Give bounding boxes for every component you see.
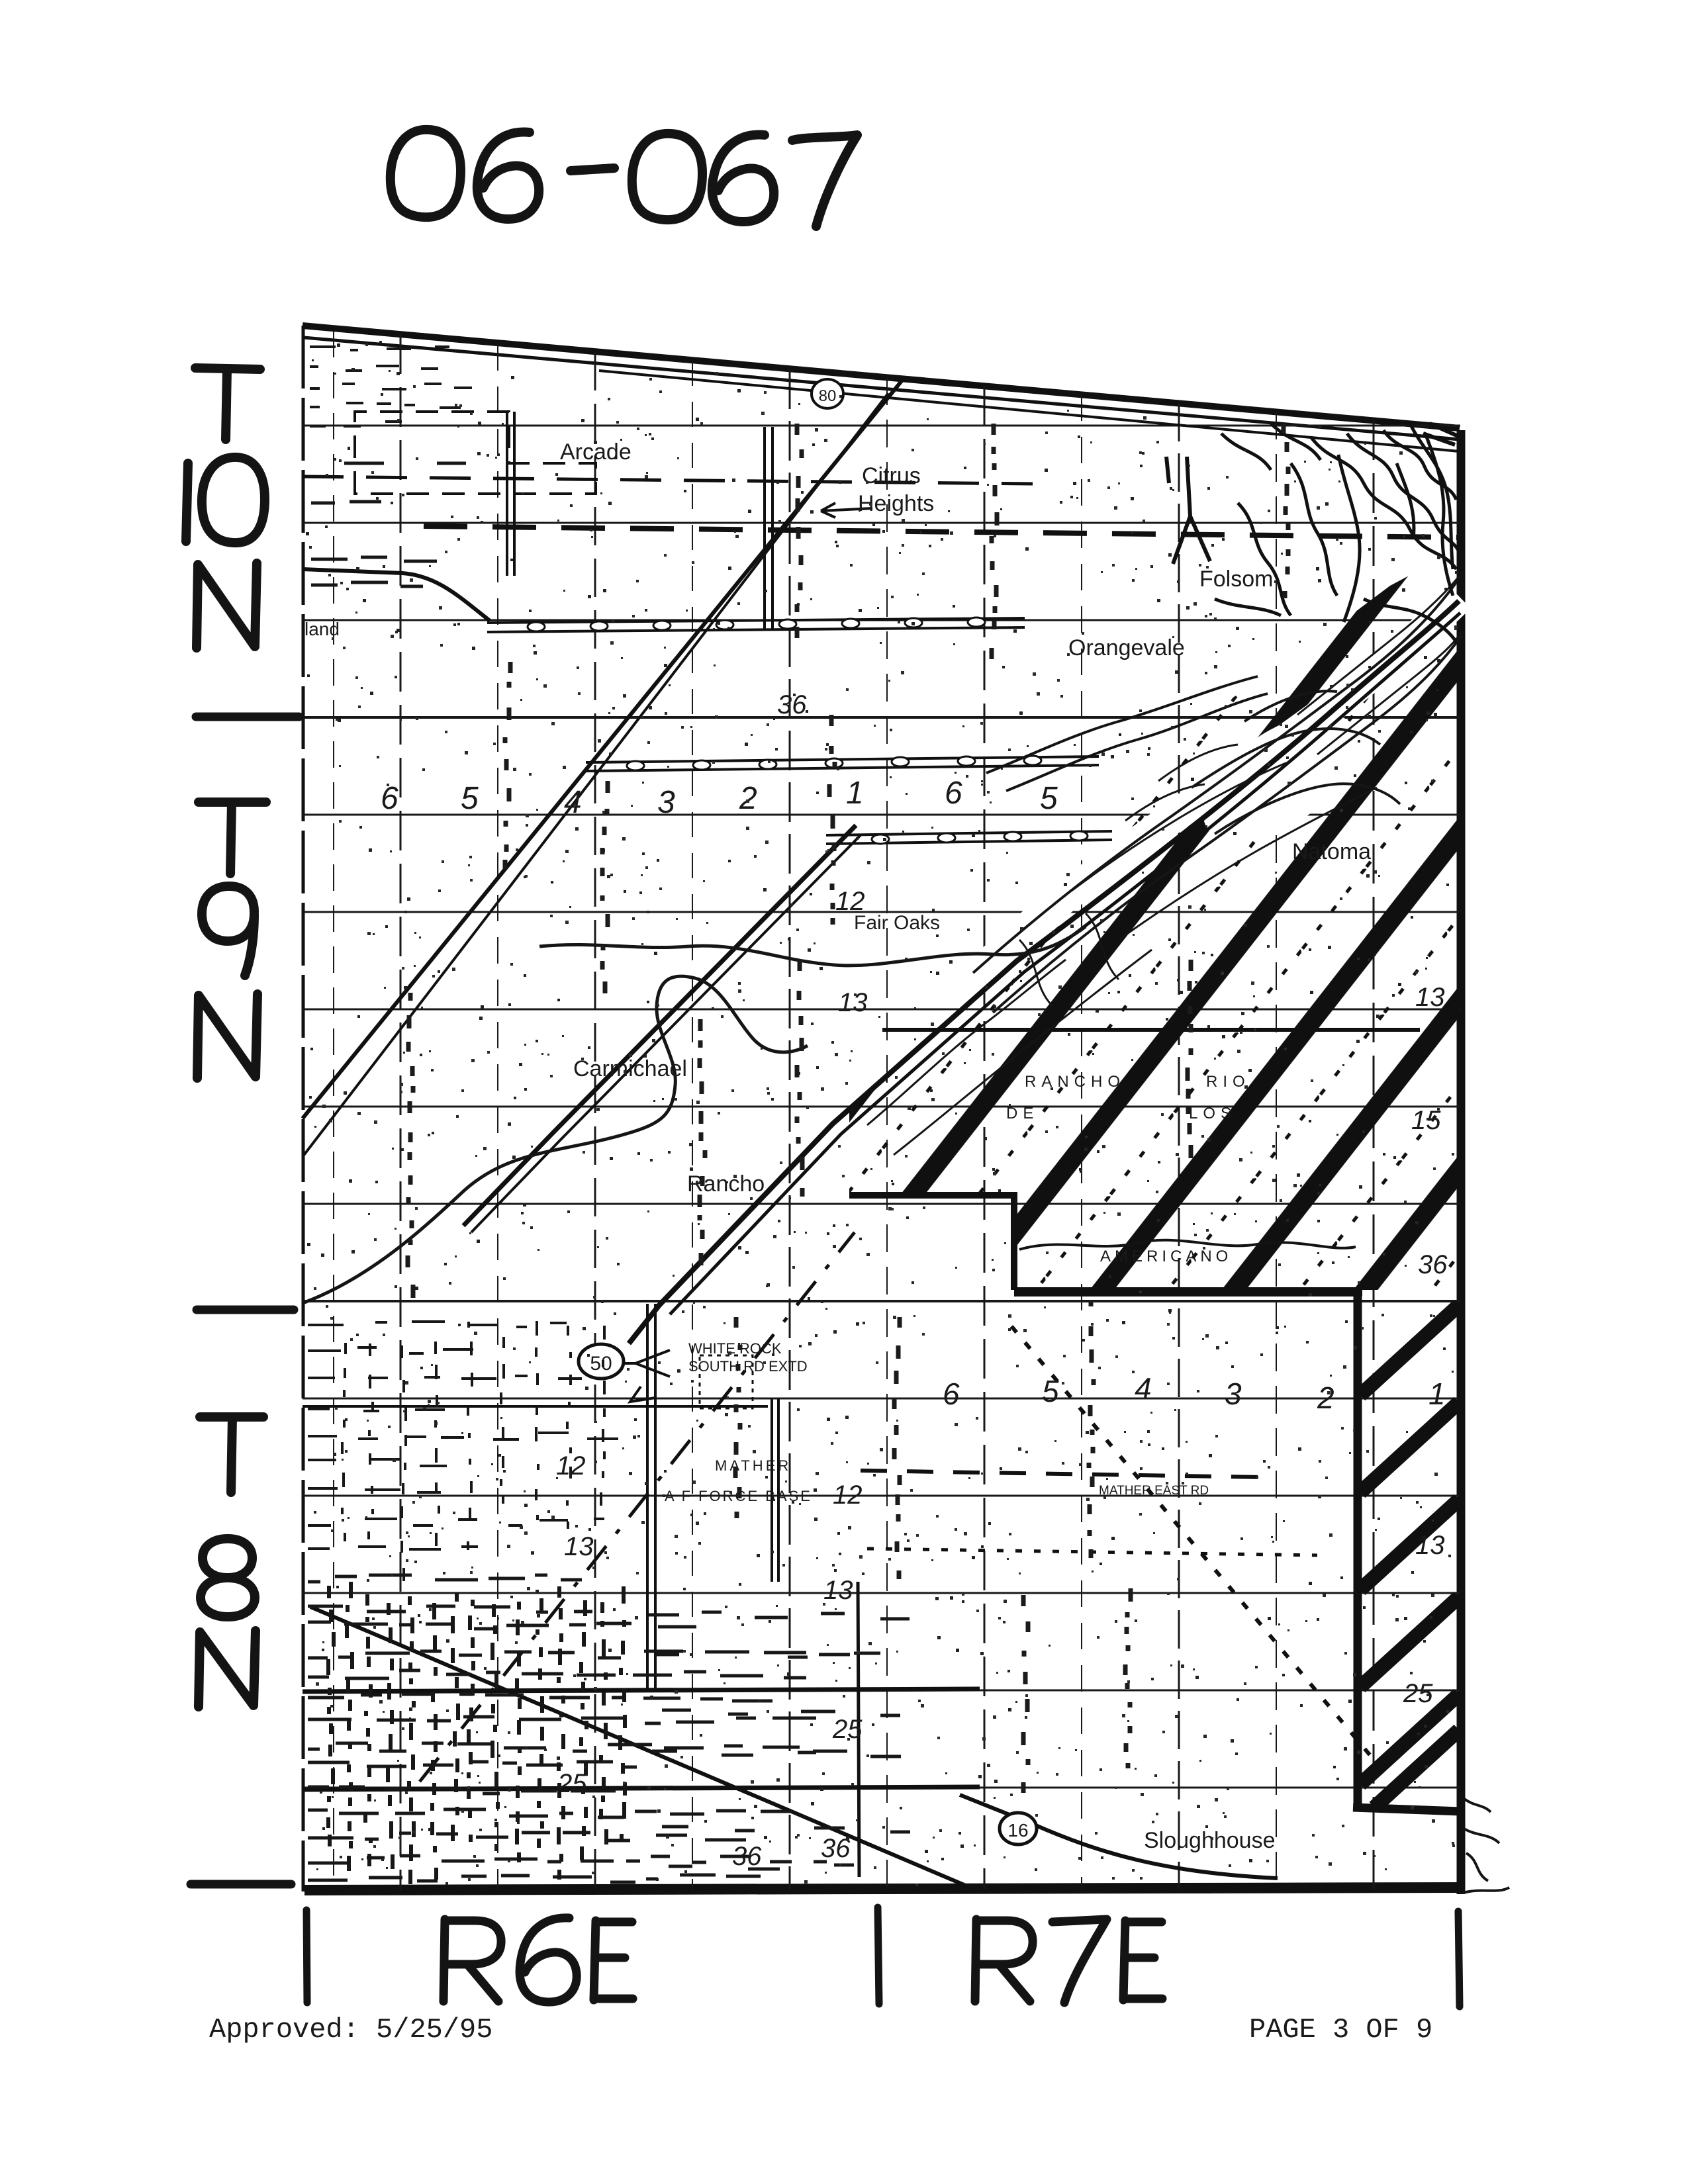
svg-text:LOS: LOS bbox=[1189, 1105, 1237, 1122]
svg-text:13: 13 bbox=[1415, 1531, 1445, 1560]
svg-text:Sloughhouse: Sloughhouse bbox=[1144, 1828, 1276, 1853]
svg-text:RIO: RIO bbox=[1206, 1073, 1250, 1091]
svg-text:6: 6 bbox=[943, 1377, 960, 1411]
svg-text:Citrus: Citrus bbox=[862, 463, 921, 488]
svg-text:2: 2 bbox=[739, 781, 757, 816]
svg-text:13: 13 bbox=[1415, 983, 1445, 1012]
svg-text:WHITE ROCK: WHITE ROCK bbox=[688, 1340, 782, 1357]
svg-text:6: 6 bbox=[945, 776, 962, 811]
svg-text:Folsom: Folsom bbox=[1199, 567, 1273, 592]
svg-text:SOUTH RD EXTD: SOUTH RD EXTD bbox=[688, 1358, 808, 1375]
svg-text:Rancho: Rancho bbox=[687, 1171, 765, 1197]
svg-text:MATHER: MATHER bbox=[715, 1457, 791, 1474]
svg-text:2: 2 bbox=[1317, 1381, 1334, 1415]
svg-text:land: land bbox=[304, 619, 340, 639]
svg-text:AMERICANO: AMERICANO bbox=[1100, 1248, 1232, 1265]
svg-text:12: 12 bbox=[835, 887, 865, 916]
svg-text:PAGE 3 OF 9: PAGE 3 OF 9 bbox=[1249, 2014, 1432, 2046]
svg-text:5: 5 bbox=[1042, 1374, 1059, 1408]
svg-text:5: 5 bbox=[461, 781, 479, 816]
svg-text:15: 15 bbox=[1411, 1106, 1441, 1135]
svg-text:1: 1 bbox=[1428, 1377, 1446, 1411]
svg-text:Fair Oaks: Fair Oaks bbox=[854, 912, 940, 934]
svg-text:36: 36 bbox=[1418, 1250, 1448, 1279]
svg-text:6: 6 bbox=[381, 781, 398, 816]
svg-text:80: 80 bbox=[819, 387, 837, 405]
svg-text:13: 13 bbox=[564, 1532, 594, 1561]
svg-text:5: 5 bbox=[1040, 781, 1058, 816]
svg-text:12: 12 bbox=[833, 1480, 863, 1510]
svg-text:Carmichael: Carmichael bbox=[573, 1056, 687, 1081]
svg-text:36: 36 bbox=[777, 690, 807, 719]
svg-text:16: 16 bbox=[1007, 1820, 1028, 1841]
svg-text:Approved: 5/25/95: Approved: 5/25/95 bbox=[209, 2014, 492, 2046]
svg-text:RANCHO: RANCHO bbox=[1025, 1073, 1125, 1091]
svg-text:DE: DE bbox=[1006, 1105, 1039, 1122]
svg-text:MATHER EAST RD: MATHER EAST RD bbox=[1099, 1484, 1209, 1498]
svg-text:13: 13 bbox=[838, 988, 868, 1017]
svg-text:Natoma: Natoma bbox=[1292, 839, 1371, 864]
svg-text:1: 1 bbox=[846, 776, 864, 811]
svg-text:13: 13 bbox=[823, 1576, 853, 1605]
svg-text:3: 3 bbox=[1225, 1377, 1242, 1411]
svg-text:50: 50 bbox=[590, 1353, 612, 1375]
svg-text:3: 3 bbox=[657, 785, 675, 820]
svg-text:4: 4 bbox=[564, 785, 582, 820]
svg-text:Orangevale: Orangevale bbox=[1068, 635, 1185, 660]
svg-text:4: 4 bbox=[1135, 1371, 1152, 1406]
